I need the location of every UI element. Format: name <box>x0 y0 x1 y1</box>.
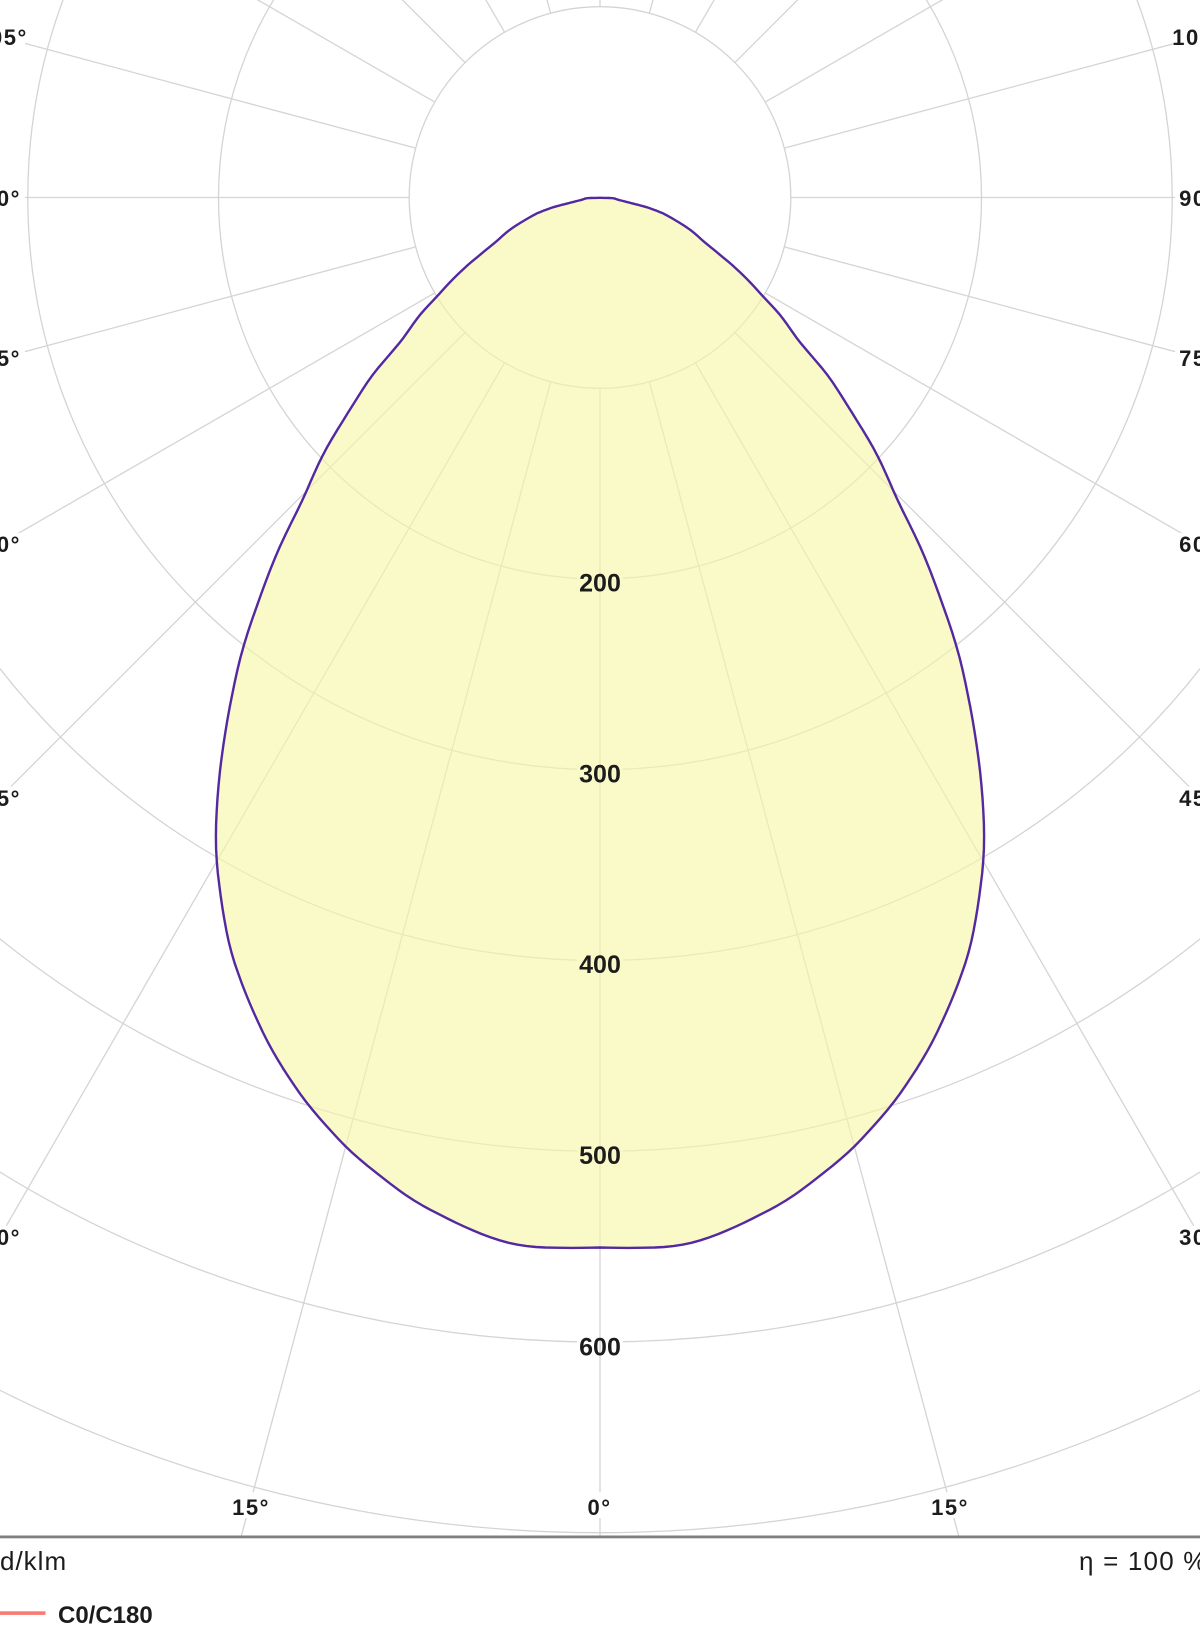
svg-text:105°: 105° <box>0 25 28 50</box>
svg-text:15°: 15° <box>232 1495 270 1520</box>
svg-text:500: 500 <box>579 1142 621 1170</box>
svg-text:60°: 60° <box>0 532 21 557</box>
svg-text:600: 600 <box>579 1334 621 1362</box>
svg-text:60°: 60° <box>1179 532 1200 557</box>
svg-text:90°: 90° <box>0 186 21 211</box>
svg-text:C0/C180: C0/C180 <box>58 1602 153 1629</box>
svg-text:η = 100 %: η = 100 % <box>1079 1546 1200 1576</box>
svg-text:30°: 30° <box>0 1225 21 1250</box>
svg-text:200: 200 <box>579 570 621 598</box>
svg-text:90°: 90° <box>1179 186 1200 211</box>
svg-text:75°: 75° <box>1179 346 1200 371</box>
svg-text:75°: 75° <box>0 346 21 371</box>
svg-text:cd/klm: cd/klm <box>0 1546 67 1576</box>
svg-text:400: 400 <box>579 951 621 979</box>
svg-text:300: 300 <box>579 761 621 789</box>
svg-text:45°: 45° <box>1179 786 1200 811</box>
svg-text:45°: 45° <box>0 786 21 811</box>
svg-text:0°: 0° <box>587 1495 611 1520</box>
svg-text:30°: 30° <box>1179 1225 1200 1250</box>
svg-text:15°: 15° <box>931 1495 969 1520</box>
svg-text:105°: 105° <box>1172 25 1200 50</box>
